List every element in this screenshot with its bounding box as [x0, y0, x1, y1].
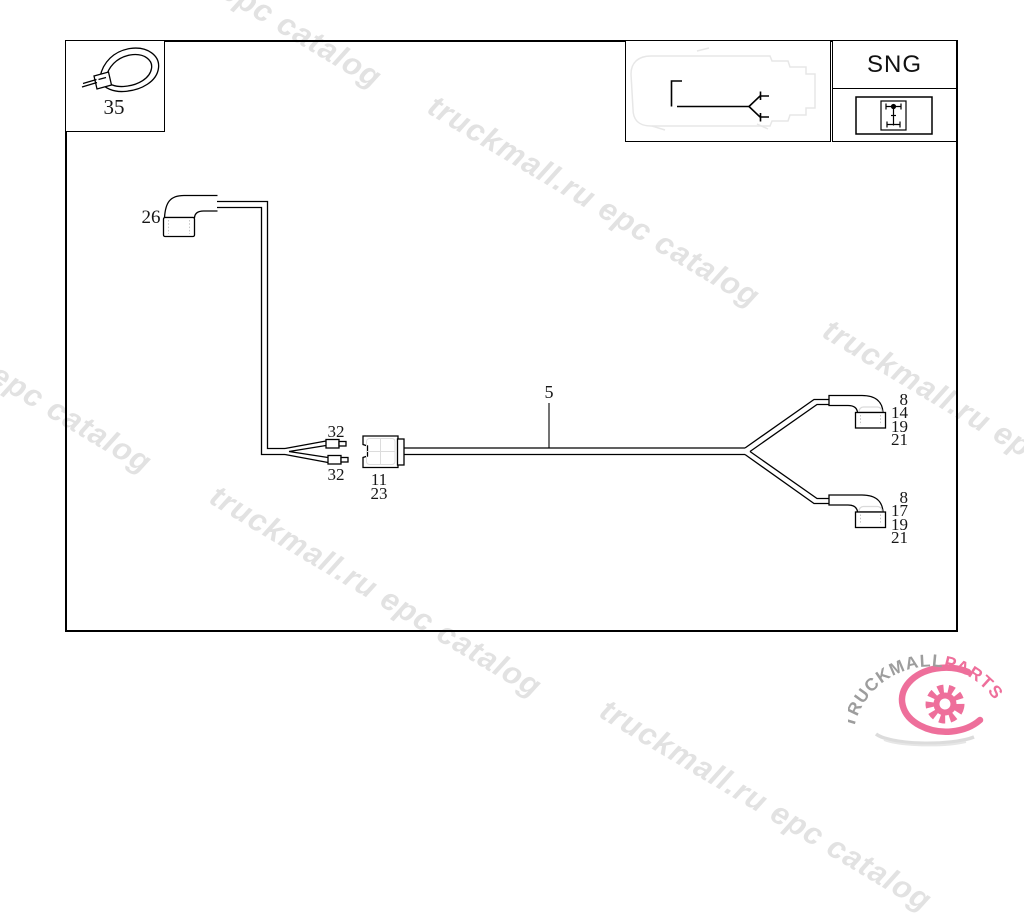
part-label-group-11-23: 11 23: [364, 473, 394, 501]
part-label-21: 21: [866, 531, 908, 544]
logo-text: TRUCKMALLPARTS: [848, 650, 1008, 729]
sng-box: SNG: [832, 40, 957, 142]
part-label-32-lower: 32: [324, 465, 348, 485]
sng-code-label: SNG: [833, 41, 956, 89]
part-label-26: 26: [138, 207, 164, 229]
vehicle-thumbnail-box: [625, 40, 831, 142]
part-label-32-upper: 32: [324, 422, 348, 442]
brand-logo: TRUCKMALLPARTS: [848, 648, 1024, 750]
part-label-23: 23: [364, 487, 394, 501]
part-label-group-bottom: 8 17 19 21: [866, 491, 908, 545]
part-label-21: 21: [866, 433, 908, 446]
part-label-group-top: 8 14 19 21: [866, 393, 908, 447]
logo-text-gray: TRUCKMALL: [848, 650, 945, 729]
part-label-35: 35: [99, 95, 129, 120]
part-label-5: 5: [538, 382, 560, 403]
logo-gear-icon: [927, 686, 963, 722]
